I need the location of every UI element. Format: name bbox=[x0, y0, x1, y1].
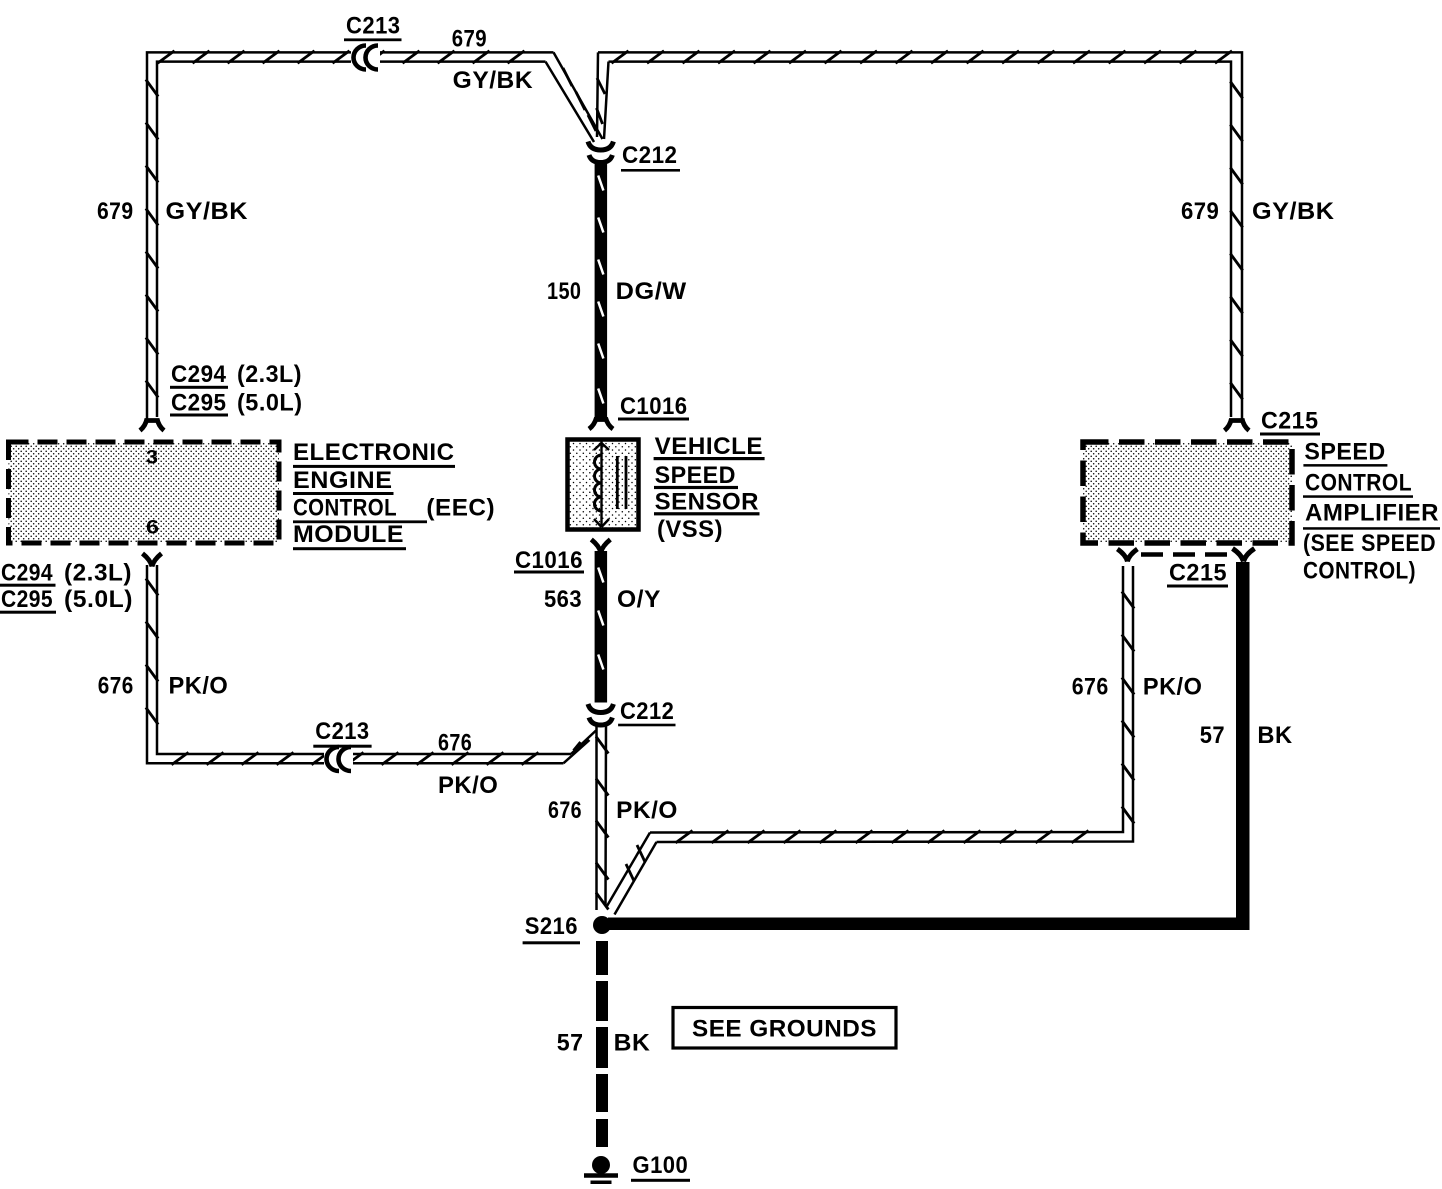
svg-text:(5.0L): (5.0L) bbox=[237, 390, 303, 417]
svg-text:CONTROL: CONTROL bbox=[1305, 470, 1412, 497]
svg-text:150: 150 bbox=[547, 278, 581, 305]
svg-text:C215: C215 bbox=[1261, 408, 1319, 435]
svg-text:SENSOR: SENSOR bbox=[655, 488, 759, 515]
svg-text:C212: C212 bbox=[622, 142, 678, 169]
svg-text:VEHICLE: VEHICLE bbox=[655, 433, 763, 460]
svg-text:57: 57 bbox=[1200, 722, 1225, 749]
svg-text:(5.0L): (5.0L) bbox=[64, 586, 133, 613]
svg-text:MODULE: MODULE bbox=[293, 521, 404, 548]
svg-text:676: 676 bbox=[548, 797, 582, 824]
svg-text:C1016: C1016 bbox=[515, 547, 583, 574]
svg-text:GY/BK: GY/BK bbox=[166, 198, 249, 225]
svg-text:676: 676 bbox=[1072, 674, 1109, 701]
svg-text:PK/O: PK/O bbox=[169, 672, 229, 699]
svg-text:(2.3L): (2.3L) bbox=[237, 361, 302, 388]
svg-text:57: 57 bbox=[557, 1030, 584, 1057]
svg-text:ENGINE: ENGINE bbox=[293, 467, 393, 494]
svg-text:SPEED: SPEED bbox=[1304, 438, 1385, 465]
svg-text:C1016: C1016 bbox=[620, 393, 688, 420]
svg-text:CONTROL): CONTROL) bbox=[1303, 558, 1416, 585]
svg-text:S216: S216 bbox=[525, 913, 578, 940]
svg-text:BK: BK bbox=[614, 1030, 651, 1057]
svg-text:3: 3 bbox=[146, 448, 158, 469]
svg-text:O/Y: O/Y bbox=[617, 586, 661, 613]
svg-text:C215: C215 bbox=[1169, 560, 1227, 587]
svg-text:6: 6 bbox=[146, 518, 159, 539]
svg-text:G100: G100 bbox=[633, 1152, 689, 1179]
svg-text:563: 563 bbox=[544, 586, 582, 613]
svg-text:PK/O: PK/O bbox=[438, 772, 498, 799]
svg-text:679: 679 bbox=[97, 198, 134, 225]
svg-text:SEE GROUNDS: SEE GROUNDS bbox=[692, 1016, 877, 1043]
svg-text:C213: C213 bbox=[315, 718, 369, 745]
svg-text:676: 676 bbox=[98, 672, 134, 699]
svg-text:C212: C212 bbox=[620, 698, 674, 725]
svg-text:BK: BK bbox=[1257, 722, 1292, 749]
svg-text:PK/O: PK/O bbox=[616, 797, 678, 824]
svg-text:GY/BK: GY/BK bbox=[453, 67, 534, 94]
svg-text:679: 679 bbox=[452, 26, 487, 53]
svg-text:ELECTRONIC: ELECTRONIC bbox=[293, 439, 455, 466]
svg-text:C295: C295 bbox=[171, 390, 227, 417]
svg-text:SPEED: SPEED bbox=[655, 462, 736, 489]
svg-text:DG/W: DG/W bbox=[616, 278, 687, 305]
svg-text:AMPLIFIER: AMPLIFIER bbox=[1305, 499, 1439, 526]
svg-text:C294: C294 bbox=[171, 361, 227, 388]
svg-text:C213: C213 bbox=[346, 13, 401, 40]
svg-text:GY/BK: GY/BK bbox=[1252, 198, 1335, 225]
svg-text:C295: C295 bbox=[1, 586, 53, 613]
svg-text:(SEE SPEED: (SEE SPEED bbox=[1303, 530, 1436, 557]
svg-text:(EEC): (EEC) bbox=[426, 494, 495, 521]
svg-text:(2.3L): (2.3L) bbox=[64, 560, 132, 587]
svg-text:PK/O: PK/O bbox=[1143, 674, 1203, 701]
svg-text:(VSS): (VSS) bbox=[657, 516, 723, 543]
svg-text:C294: C294 bbox=[1, 560, 53, 587]
svg-text:679: 679 bbox=[1181, 198, 1219, 225]
svg-text:676: 676 bbox=[438, 730, 472, 757]
svg-text:CONTROL: CONTROL bbox=[293, 494, 397, 521]
